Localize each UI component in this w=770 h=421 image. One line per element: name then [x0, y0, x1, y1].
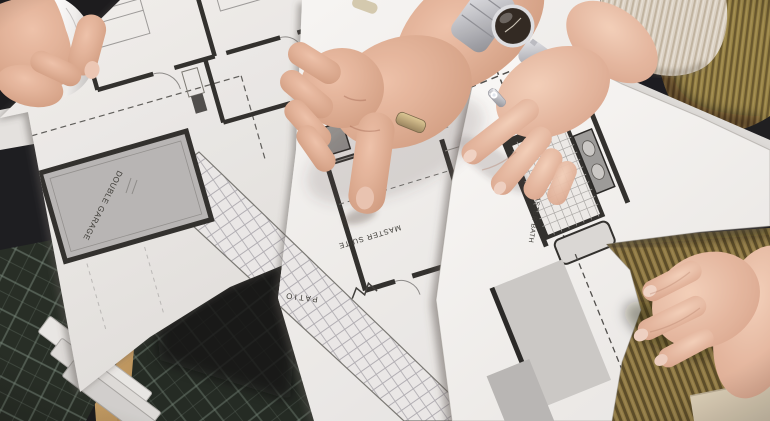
blueprint-photo-scene: DOUBLE GARAGE	[0, 0, 770, 421]
photo-svg: DOUBLE GARAGE	[0, 0, 770, 421]
